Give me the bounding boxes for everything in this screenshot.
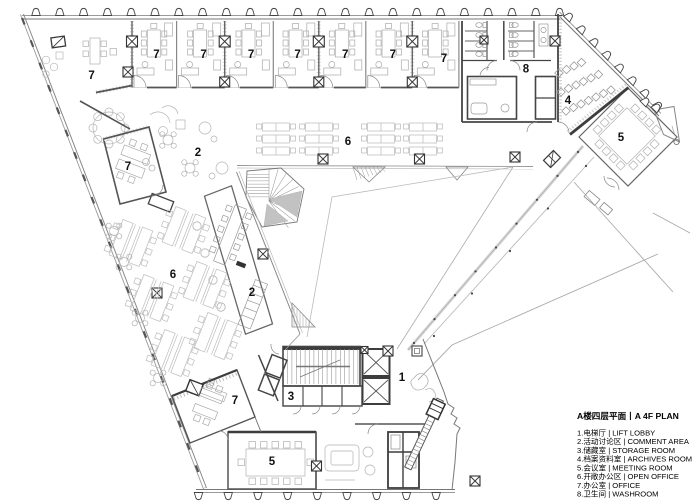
svg-text:7: 7 (342, 49, 348, 61)
svg-text:7: 7 (232, 395, 238, 407)
svg-text:7: 7 (294, 49, 300, 61)
svg-text:7: 7 (88, 70, 94, 82)
svg-text:4.档案资料室 | ARCHIVES ROOM: 4.档案资料室 | ARCHIVES ROOM (577, 454, 692, 464)
svg-text:3.储藏室 | STORAGE ROOM: 3.储藏室 | STORAGE ROOM (577, 445, 675, 455)
svg-text:7: 7 (200, 49, 206, 61)
svg-text:5: 5 (269, 456, 276, 468)
svg-text:1.电梯厅 | LIFT LOBBY: 1.电梯厅 | LIFT LOBBY (577, 427, 655, 437)
svg-text:5: 5 (618, 132, 625, 144)
svg-text:6: 6 (345, 136, 351, 148)
svg-text:6: 6 (170, 269, 176, 281)
svg-text:1: 1 (399, 372, 406, 384)
svg-text:4: 4 (565, 95, 572, 107)
svg-text:7: 7 (441, 53, 447, 65)
svg-text:2: 2 (249, 287, 255, 299)
svg-text:3: 3 (288, 391, 294, 403)
svg-text:7: 7 (390, 49, 396, 61)
svg-text:7.办公室 | OFFICE: 7.办公室 | OFFICE (577, 480, 640, 490)
svg-text:7: 7 (125, 161, 131, 173)
svg-text:5.会议室 | MEETING ROOM: 5.会议室 | MEETING ROOM (577, 462, 673, 472)
svg-text:2: 2 (195, 147, 201, 159)
svg-text:A楼四层平面丨A 4F PLAN: A楼四层平面丨A 4F PLAN (577, 410, 679, 421)
svg-text:8.卫生间 | WASHROOM: 8.卫生间 | WASHROOM (577, 489, 658, 499)
svg-text:7: 7 (153, 49, 159, 61)
svg-text:7: 7 (248, 49, 254, 61)
svg-text:6.开敞办公区 | OPEN OFFICE: 6.开敞办公区 | OPEN OFFICE (577, 471, 679, 481)
svg-text:8: 8 (523, 64, 530, 76)
svg-text:2.活动讨论区 | COMMENT AREA: 2.活动讨论区 | COMMENT AREA (577, 436, 690, 446)
